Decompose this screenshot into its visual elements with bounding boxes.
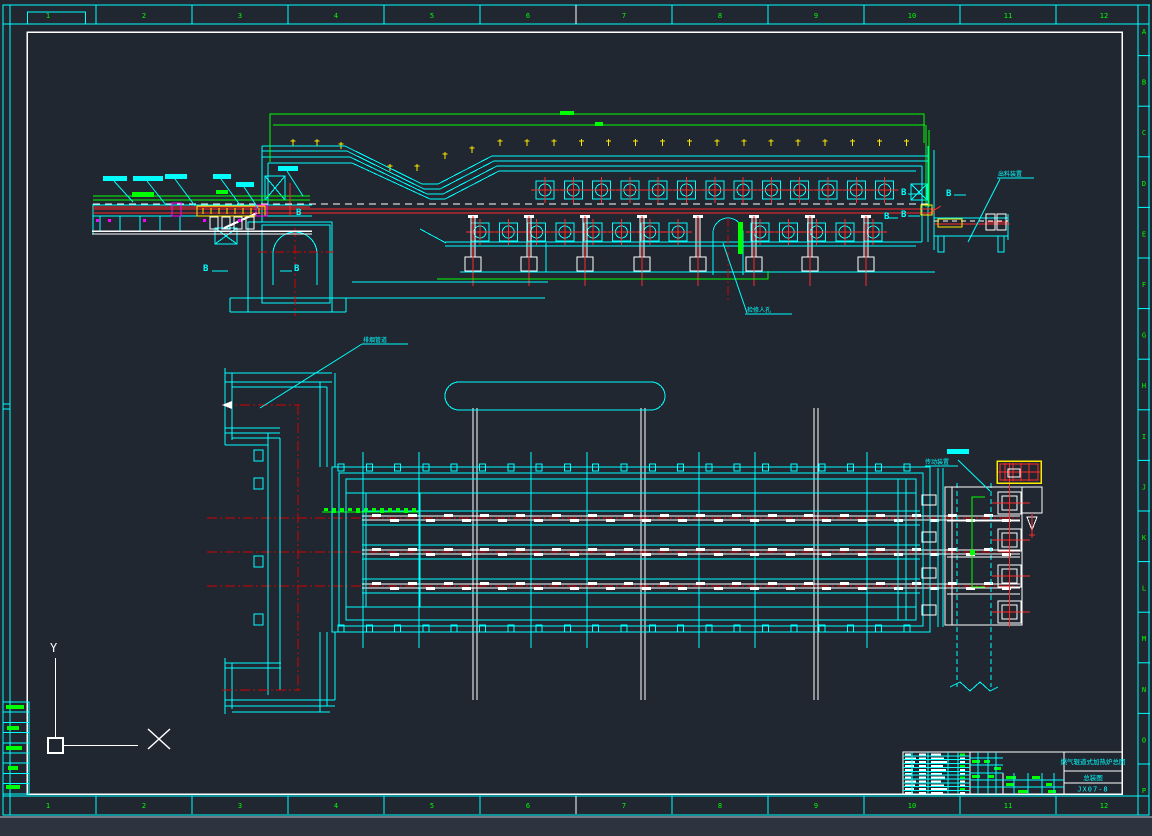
grid-col-label: 3 (238, 12, 242, 20)
grid-row-label: J (1142, 483, 1146, 491)
grid-row-label: F (1142, 281, 1146, 289)
svg-text:B: B (884, 212, 890, 222)
annotation-texts: 检修人孔 出料装置 排烟管道 传动装置 (363, 170, 1022, 466)
plan-view (222, 368, 1042, 714)
cad-viewport[interactable]: 112233445566778899101011111212ABCDEFGHIJ… (0, 0, 1152, 836)
grid-row-label: M (1142, 635, 1146, 643)
svg-text:B: B (296, 208, 302, 218)
grid-row-label: I (1142, 433, 1146, 441)
door-label: 检修人孔 (747, 306, 771, 314)
grid-col-label: 7 (622, 802, 626, 810)
ucs-y-label: Y (50, 641, 58, 655)
drive-label: 传动装置 (925, 458, 949, 466)
svg-text:B: B (294, 264, 300, 274)
grid-col-label: 9 (814, 802, 818, 810)
grid-col-label: 12 (1100, 802, 1108, 810)
grid-col-label: 1 (46, 12, 50, 20)
leader-lines (114, 171, 1034, 491)
revision-table (3, 702, 29, 794)
grid-col-label: 2 (142, 802, 146, 810)
grid-col-label: 8 (718, 12, 722, 20)
grid-col-label: 2 (142, 12, 146, 20)
grid-row-label: P (1142, 787, 1146, 795)
gas-pipes (93, 114, 929, 279)
ucs-icon (48, 658, 138, 753)
grid-col-label: 1 (46, 802, 50, 810)
grid-row-label: B (1142, 79, 1146, 87)
side-view (92, 111, 1010, 316)
bottom-strip (0, 817, 1152, 836)
grid-row-label: E (1142, 230, 1146, 238)
crosshair-cursor[interactable] (148, 729, 170, 749)
grid-col-label: 10 (908, 12, 916, 20)
grid-row-label: K (1142, 534, 1147, 542)
grid-col-label: 11 (1004, 802, 1012, 810)
drawing-subtitle: 总装图 (1083, 773, 1103, 782)
grid-col-label: 11 (1004, 12, 1012, 20)
datum-arrow (222, 401, 232, 409)
discharge-label: 出料装置 (998, 170, 1022, 178)
drive-linkage (972, 497, 985, 587)
drawing-number: JX07-8 (1077, 786, 1108, 794)
svg-text:B: B (946, 189, 952, 199)
flue-label: 排烟管道 (363, 336, 387, 344)
grid-col-label: 4 (334, 802, 338, 810)
inner-frame (27, 32, 1122, 794)
grid-col-label: 10 (908, 802, 916, 810)
grid-row-label: H (1142, 382, 1146, 390)
grid-row-label: D (1142, 180, 1146, 188)
drive-frame (922, 487, 1042, 625)
svg-text:B: B (901, 188, 907, 198)
grid-col-label: 5 (430, 802, 434, 810)
grid-col-label: 7 (622, 12, 626, 20)
grid-row-label: A (1142, 28, 1147, 36)
grid-col-label: 8 (718, 802, 722, 810)
grid-col-label: 12 (1100, 12, 1108, 20)
grid-row-label: L (1142, 585, 1146, 593)
drawing-title: 燃气辊道式加热炉总图 (1061, 757, 1126, 766)
grid-col-label: 6 (526, 12, 530, 20)
grid-col-label: 5 (430, 12, 434, 20)
svg-text:B: B (901, 210, 907, 220)
cad-drawing: 112233445566778899101011111212ABCDEFGHIJ… (0, 0, 1152, 836)
grid-col-label: 9 (814, 12, 818, 20)
grid-row-label: O (1142, 736, 1146, 744)
centerlines (258, 218, 728, 316)
svg-text:B: B (203, 264, 209, 274)
grid-row-label: C (1142, 129, 1146, 137)
grid-col-label: 6 (526, 802, 530, 810)
grid-col-label: 4 (334, 12, 338, 20)
grid-row-label: N (1142, 686, 1146, 694)
grid-row-label: G (1142, 332, 1146, 340)
grid-col-label: 3 (238, 802, 242, 810)
